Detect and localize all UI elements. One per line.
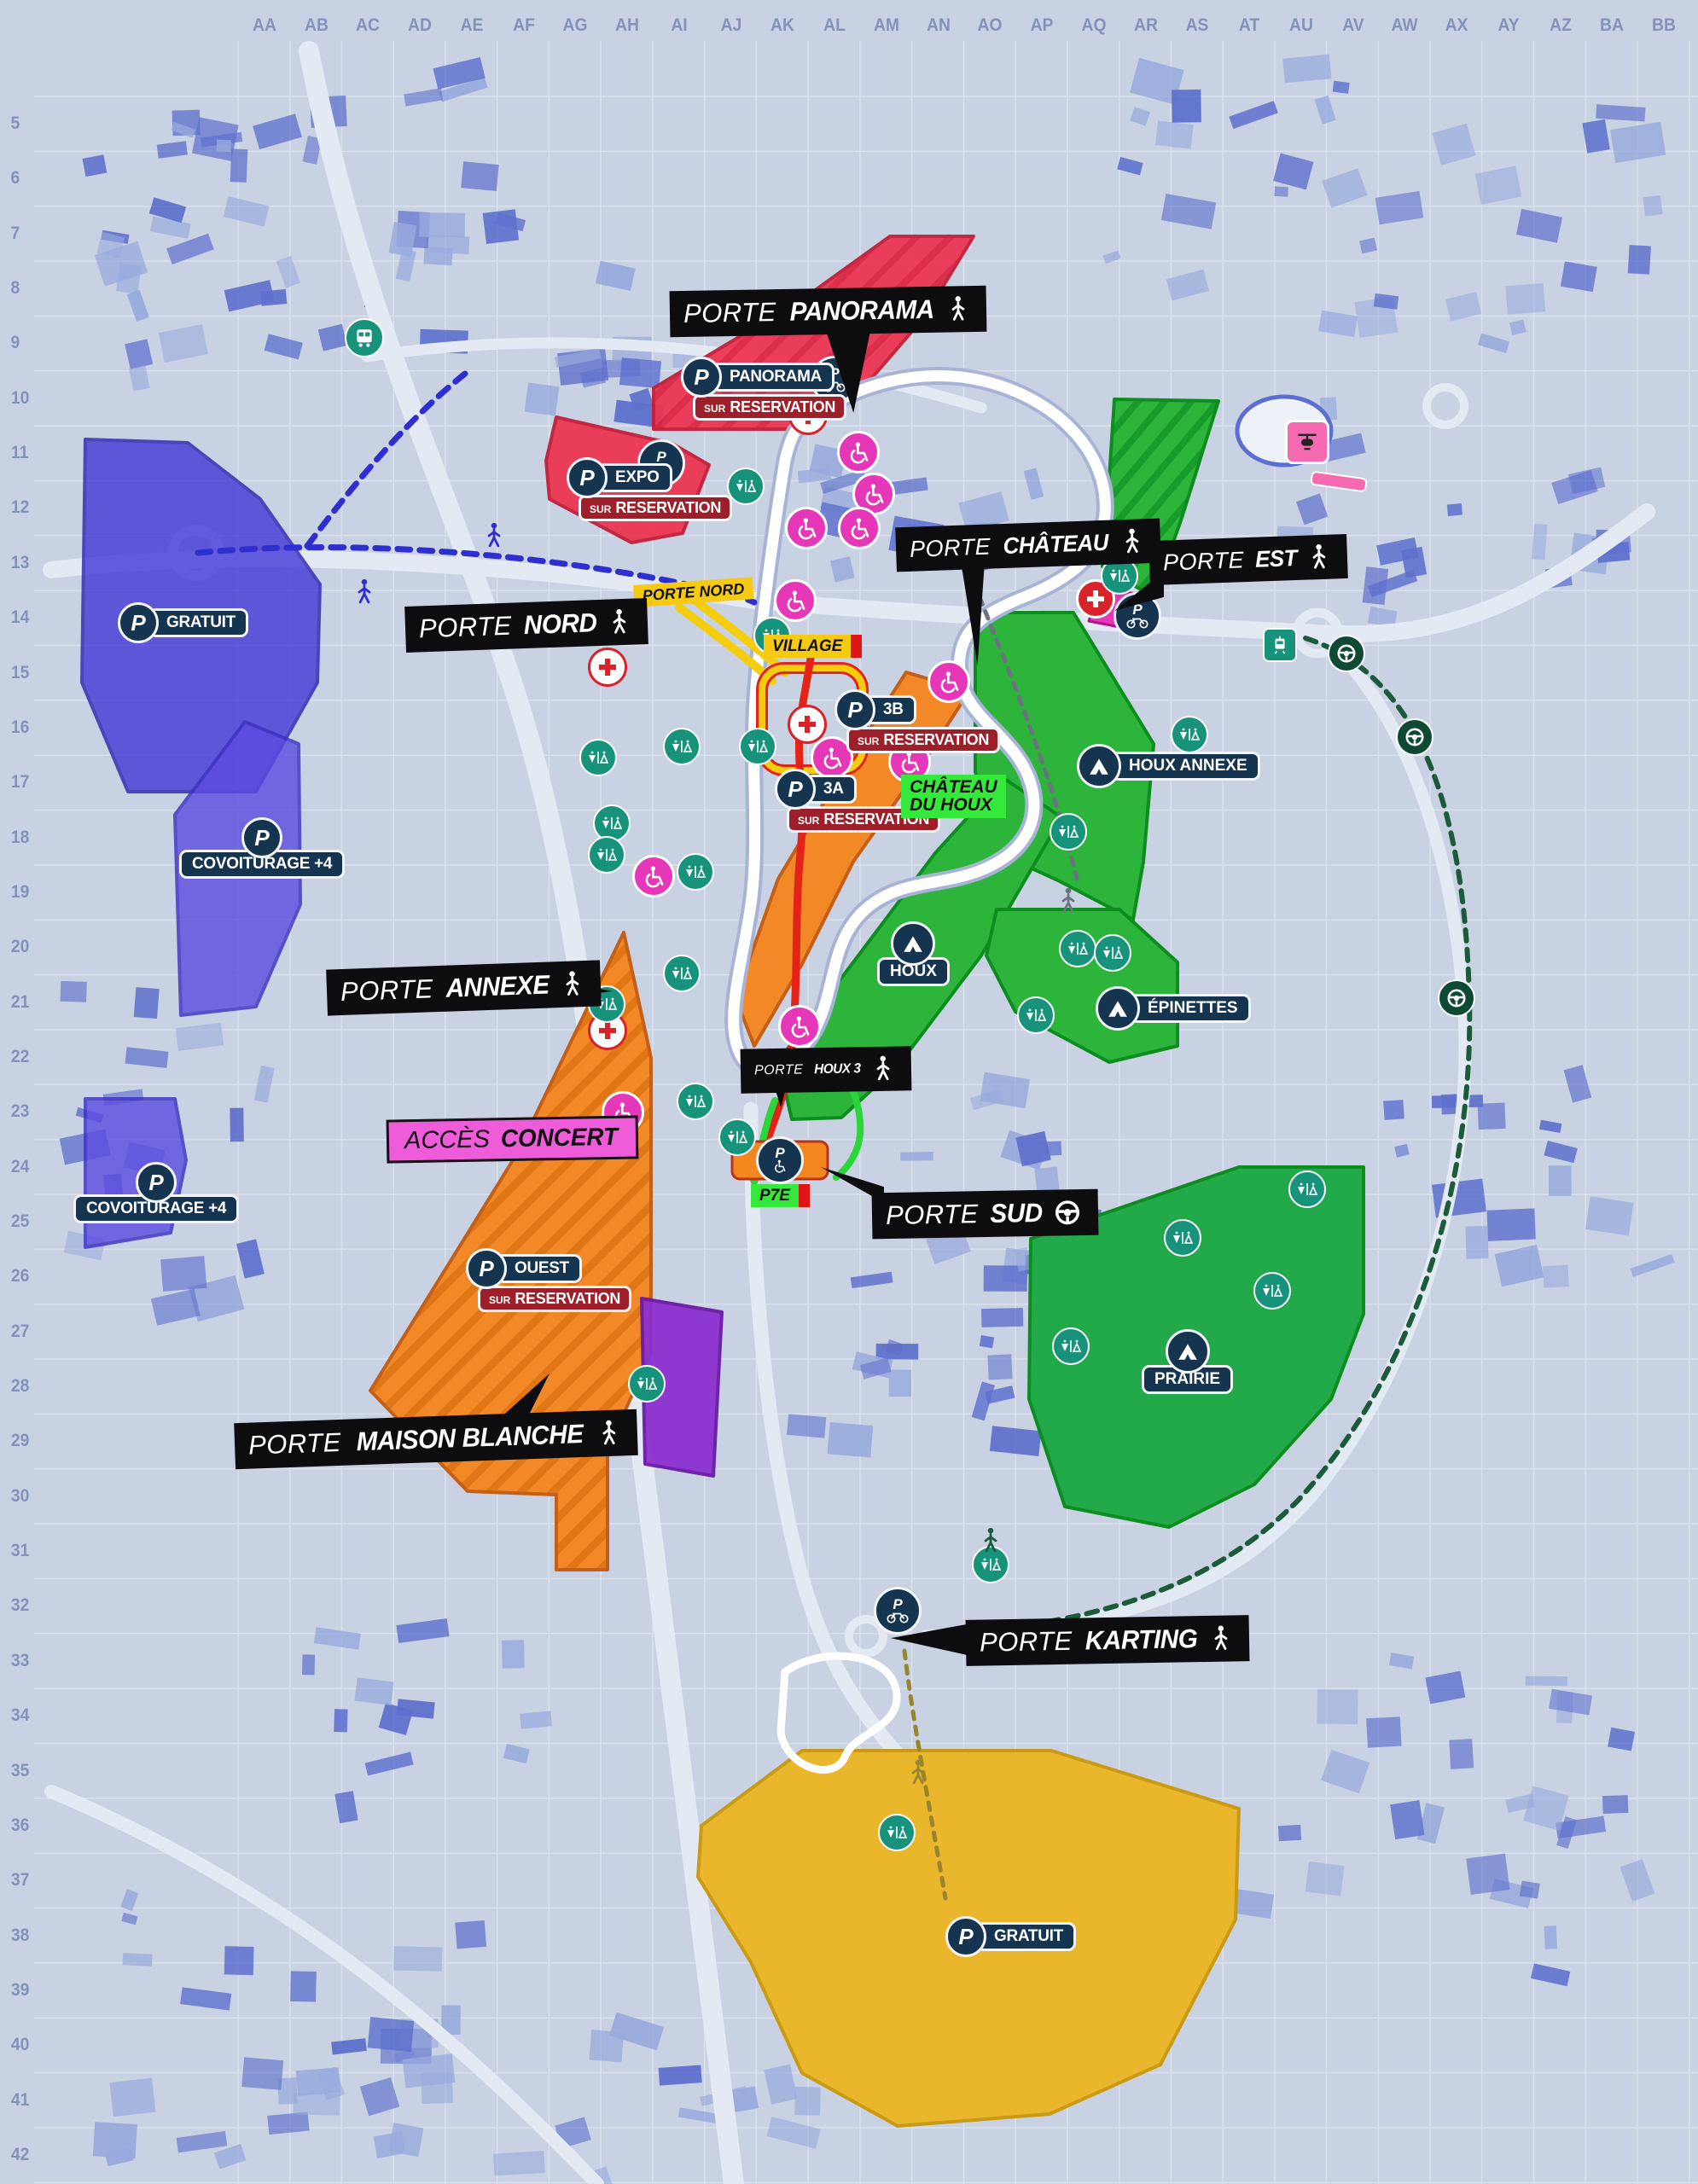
bicycle-icon [1126,616,1148,629]
building [134,987,160,1019]
gate-name: ANNEXE [445,970,550,1004]
services-icon [628,1365,666,1403]
parking-chip-expo: PEXPOSURRESERVATION [567,457,732,521]
building [388,2123,423,2157]
first-aid-icon [588,648,627,687]
building [1543,1265,1569,1288]
grid-row-label: 36 [11,1815,29,1836]
parking-label: GRATUIT [976,1922,1076,1951]
grid-row-label: 40 [11,2035,29,2055]
camping-chip-epinettes: ÉPINETTES [1096,986,1251,1031]
accessible-viewing-icon [774,579,817,622]
services-icon [886,1826,908,1839]
building [241,2057,283,2089]
building [525,383,560,416]
building [828,1422,874,1458]
walking-person-icon [1051,884,1085,918]
bicycle-icon [887,1611,909,1623]
waypoint-p7e: P7E [751,1184,810,1207]
building [296,2067,340,2096]
building [1390,1800,1425,1839]
first-aid-cross-icon [1085,589,1106,609]
waypoint-chateau-du-houx: CHÂTEAUDU HOUX [901,775,1006,818]
parking-p-icon: P [681,357,722,398]
services-icon [588,836,625,874]
services-icon [1108,569,1131,583]
grid-row-label: 9 [10,333,20,353]
building [267,2111,309,2135]
building [1155,120,1194,148]
parking-chip-row: POUEST [466,1248,631,1289]
building [889,1370,911,1397]
building [82,154,107,177]
reservation-word: RESERVATION [883,731,989,749]
grid-column-label: AS [1186,15,1209,36]
grid-row-label: 35 [11,1761,29,1781]
access-concert-label: ACCÈSCONCERT [387,1115,639,1163]
gate-label-panorama: PORTEPANORAMA [670,286,987,337]
pedestrian-icon [1210,1623,1233,1653]
grid-column-label: AR [1134,15,1158,36]
parking-chip-row: P3B [834,689,1000,730]
pedestrian-icon [947,294,970,323]
building [393,1946,442,1971]
grid-row-label: 37 [11,1870,29,1891]
gate-prefix: PORTE [340,973,433,1008]
gate-prefix: PORTE [754,1062,804,1078]
first-aid-cross-icon [797,714,817,735]
services-icon [1288,1170,1326,1208]
grid-row-label: 26 [11,1266,29,1287]
camping-chip-houx: HOUX [877,921,950,986]
gate-name: CHÂTEAU [1003,529,1108,559]
shuttle-bus-icon [345,318,384,357]
building [1374,293,1399,310]
reservation-sur: SUR [704,403,725,415]
grid-column-label: AE [461,15,484,36]
tent-icon [1077,744,1121,788]
pedestrian-icon [980,1526,1002,1555]
services-icon [739,728,776,765]
reservation-word: RESERVATION [730,398,835,416]
building [1628,245,1651,275]
access-prefix: ACCÈS [404,1125,490,1155]
camping-chip-houx-annexe: HOUX ANNEXE [1077,744,1260,788]
building [1465,1226,1488,1259]
waypoint-line: P7E [759,1188,790,1204]
building [403,2053,456,2088]
building [502,1640,525,1668]
grid-column-label: AF [513,15,535,36]
building [419,212,465,237]
grid-row-label: 25 [11,1211,29,1232]
steering-wheel-icon [1053,1199,1081,1227]
media-shuttle-icon [1285,420,1329,464]
wheelchair-icon [773,1159,787,1173]
access-name: CONCERT [500,1124,618,1153]
building [1478,1103,1506,1130]
wheelchair-icon [784,590,807,613]
services-icon [1017,996,1055,1034]
pedestrian-icon [1307,543,1330,572]
services-icon [663,955,701,992]
gate-name: HOUX 3 [814,1061,861,1077]
services-icon [601,816,623,830]
parking-p-icon: P [118,602,159,643]
pedestrian-icon [608,607,631,637]
gate-prefix: PORTE [1163,547,1245,576]
grid-column-label: AW [1392,15,1418,36]
gate-prefix: PORTE [886,1199,979,1231]
parking-chip-gratuit-karting: PGRATUIT [945,1916,1076,1957]
services-icon [596,848,618,862]
bike-parking-icon: P [874,1587,922,1635]
steering-wheel-icon [1446,988,1467,1008]
services-icon [587,751,609,764]
services-icon [735,479,757,493]
building [787,1414,826,1438]
services-icon [1057,825,1079,839]
grid-column-label: AA [253,15,276,36]
reservation-badge: SURRESERVATION [478,1286,631,1312]
building [1643,195,1662,217]
grid-column-label: AN [927,15,951,36]
reservation-sur: SUR [590,503,611,515]
grid-column-label: AH [615,15,639,36]
gate-label-nord: PORTENORD [404,598,648,653]
building [1278,1825,1301,1841]
building [1520,1881,1540,1899]
gate-label-annexe: PORTEANNEXE [326,960,602,1015]
parking-label: GRATUIT [148,608,248,637]
tent-icon [1166,1329,1210,1374]
parking-p-icon: P [945,1916,986,1957]
building [1532,524,1548,561]
wheelchair-icon [848,517,871,540]
waypoint-line: PORTE NORD [642,581,745,604]
gate-label-houx3: PORTEHOUX 3 [741,1046,912,1093]
wheelchair-icon [847,441,870,464]
grid-row-label: 24 [11,1157,29,1177]
building [1544,1926,1557,1949]
accessible-viewing-icon [778,1005,821,1048]
grid-row-label: 31 [11,1541,29,1561]
parking-p-icon: P [834,689,875,730]
gate-name: EST [1255,545,1298,573]
tram-icon [1271,636,1289,654]
grid-row-label: 16 [11,717,29,738]
gate-prefix: PORTE [248,1427,342,1461]
grid-column-label: AQ [1081,15,1106,36]
reservation-badge: SURRESERVATION [693,394,846,421]
services-icon [1164,1219,1201,1257]
wheelchair-icon [643,865,666,888]
pedestrian-icon [872,1054,895,1083]
waypoint-text: VILLAGE [772,638,842,654]
grid-row-label: 32 [11,1595,29,1616]
gate-prefix: PORTE [683,297,776,329]
grid-row-label: 20 [11,937,29,957]
parking-chip-row: PGRATUIT [118,602,248,643]
building [334,1709,347,1732]
grid-row-label: 23 [11,1101,29,1122]
reservation-sur: SUR [798,815,819,827]
reservation-badge: SURRESERVATION [846,727,1000,753]
walking-person-icon [347,575,381,609]
grid-row-label: 6 [10,168,20,189]
waypoint-text: PORTE NORD [642,581,745,604]
accessible-viewing-icon [785,507,828,549]
grid-column-label: AB [305,15,329,36]
building [293,2093,340,2116]
tent-icon [1096,986,1140,1031]
building [260,289,287,306]
grid-column-label: BB [1652,15,1676,36]
pmr-parking-icon: P [756,1136,804,1184]
services-icon [727,468,765,505]
waypoint-line: DU HOUX [910,796,997,814]
reservation-word: RESERVATION [515,1290,620,1308]
grid-column-label: AZ [1550,15,1572,36]
wheelchair-icon [795,517,818,540]
grid-row-label: 27 [11,1321,29,1342]
building [160,1256,206,1292]
first-aid-cross-icon [597,657,618,677]
services-icon [747,740,769,753]
grid-column-label: AK [770,15,794,36]
grid-row-label: 29 [11,1431,29,1451]
red-end-bar [799,1184,810,1207]
building [122,1953,152,1966]
accessible-viewing-icon [632,855,675,897]
grid-column-label: AC [357,15,381,36]
accessible-viewing-icon [838,507,881,549]
grid-row-label: 17 [11,772,29,793]
wheelchair-icon [788,1015,811,1038]
pedestrian-icon [597,1418,620,1448]
grid-row-label: 41 [11,2090,29,2111]
services-icon [1094,934,1131,972]
services-icon [684,865,707,879]
services-icon [1050,813,1087,851]
building [230,148,248,182]
services-icon [677,1083,714,1120]
services-icon [1025,1008,1047,1022]
building [1274,186,1288,196]
building [589,2030,624,2063]
building [900,1152,933,1161]
grid-row-label: 12 [11,497,29,518]
services-icon [677,853,714,891]
grid-row-label: 10 [11,388,29,409]
building [1046,1141,1061,1156]
building [980,1335,994,1348]
grid-row-label: 21 [11,992,29,1013]
building [1466,1854,1509,1895]
pedestrian-icon [597,1418,620,1448]
parking-p-icon: P [136,1162,177,1203]
building [1549,1165,1572,1195]
services-icon [1060,1339,1082,1353]
building [520,1711,552,1728]
pedestrian-icon [608,607,631,637]
walking-person-icon [477,519,511,553]
reservation-sur: SUR [858,735,879,747]
parking-chip-panorama: PPANORAMASURRESERVATION [681,357,846,421]
pedestrian-icon [907,1758,929,1787]
building [1282,55,1331,84]
parking-label: PANORAMA [712,363,834,392]
grid-row-label: 11 [11,443,28,463]
gate-prefix: PORTE [910,533,991,562]
services-icon [1296,1182,1318,1196]
building [217,140,231,152]
building [109,2078,155,2117]
parking-chip-row: PGRATUIT [945,1916,1076,1957]
building [1585,1196,1634,1235]
grid-row-label: 34 [11,1705,29,1726]
parking-chip-covoiturage-1: PCOVOITURAGE +4 [179,817,345,879]
steering-wheel-icon [1336,643,1357,664]
building [1505,283,1545,315]
building [290,1971,317,2001]
pedestrian-icon [1120,526,1143,556]
grid-column-label: AD [408,15,432,36]
services-icon [1253,1272,1291,1310]
building [1172,90,1201,123]
gate-name: KARTING [1085,1623,1197,1656]
pedestrian-icon [947,294,970,323]
walking-person-icon [974,1524,1008,1558]
grid-row-label: 22 [11,1047,29,1067]
parking-p-icon: P [241,817,282,858]
parking-p-icon: P [466,1248,507,1289]
building [368,2017,415,2052]
p-letter: P [893,1599,902,1611]
parking-label: EXPO [597,463,672,492]
grid-row-label: 5 [10,113,20,134]
services-icon [1172,1231,1194,1245]
steering-wheel-icon [1404,727,1425,747]
bus-icon [353,327,375,349]
grid-row-label: 8 [10,278,20,299]
grid-column-label: AT [1239,15,1259,36]
pedestrian-icon [1057,886,1079,915]
waypoint-line: CHÂTEAU [910,778,997,796]
red-end-bar [851,635,862,658]
services-icon [726,1130,748,1144]
services-icon [1067,942,1089,955]
building [619,357,661,388]
grid-row-label: 42 [11,2145,29,2165]
building [794,2087,821,2116]
parking-p-icon: P [567,457,608,498]
services-icon [579,739,617,776]
building [483,209,519,244]
reservation-word: RESERVATION [615,499,721,517]
building [455,1920,486,1949]
grid-row-label: 18 [11,828,29,848]
grid-row-label: 7 [10,224,20,244]
services-icon [636,1377,658,1391]
pedestrian-icon [1210,1623,1233,1653]
services-icon [1102,946,1124,960]
grid-row-label: 19 [11,882,29,903]
tent-icon [1088,756,1110,776]
grid-column-label: AY [1497,15,1519,36]
building [1486,1208,1535,1241]
parking-label: OUEST [497,1254,582,1283]
pedestrian-icon [1120,526,1143,556]
grid-column-label: AV [1342,15,1364,36]
grid-column-label: AO [978,15,1003,36]
building [1383,1100,1404,1120]
grid-column-label: AM [874,15,899,36]
reservation-sur: SUR [489,1294,510,1306]
car-roundabout-icon [1328,635,1365,672]
grid-column-label: AJ [720,15,741,36]
camping-label: HOUX ANNEXE [1111,752,1260,781]
parking-chip-row: PEXPO [567,457,732,498]
pedestrian-icon [483,521,505,550]
building [1449,1739,1474,1769]
p-letter: P [775,1147,784,1159]
grid-row-label: 28 [11,1376,29,1397]
tram-icon [1263,628,1297,662]
grid-column-label: AI [671,15,687,36]
gate-label-chateau: PORTECHÂTEAU [895,519,1160,572]
services-icon [671,740,693,753]
services-icon [1261,1284,1283,1298]
building [987,1354,1012,1380]
parking-chip-gratuit-nord: PGRATUIT [118,602,248,643]
tent-icon [1177,1341,1199,1362]
gate-name: NORD [523,607,597,641]
camping-label: ÉPINETTES [1130,994,1251,1023]
waypoint-text: CHÂTEAUDU HOUX [910,778,997,815]
grid-column-label: AU [1289,15,1313,36]
parking-p-icon: P [775,769,816,810]
waypoint-village: VILLAGE [764,635,862,658]
building [93,2122,137,2158]
services-icon [1052,1327,1090,1365]
pedestrian-icon [353,578,375,607]
grid-row-label: 39 [11,1980,29,2001]
services-icon [878,1814,916,1851]
bicycle-icon [1126,616,1148,629]
building [1602,1795,1628,1814]
parking-chip-row: PPANORAMA [681,357,846,398]
grid-row-label: 13 [11,553,29,573]
services-icon [663,728,701,765]
parking-chip-ouest: POUESTSURRESERVATION [466,1248,631,1312]
gate-label-sud: PORTESUD [872,1189,1099,1240]
first-aid-cross-icon [597,1020,618,1041]
grid-row-label: 15 [11,663,29,683]
waypoint-text: P7E [759,1188,790,1204]
grid-column-label: BA [1600,15,1624,36]
reservation-badge: SURRESERVATION [579,495,732,521]
building [1447,503,1462,516]
grid-row-label: 14 [11,607,29,628]
services-icon [684,1095,707,1108]
building [1441,1094,1458,1114]
gate-name: MAISON BLANCHE [356,1419,584,1457]
gate-name: SUD [990,1198,1043,1229]
grid-column-label: AX [1445,15,1468,36]
tent-icon [902,933,924,954]
building [354,1677,393,1705]
